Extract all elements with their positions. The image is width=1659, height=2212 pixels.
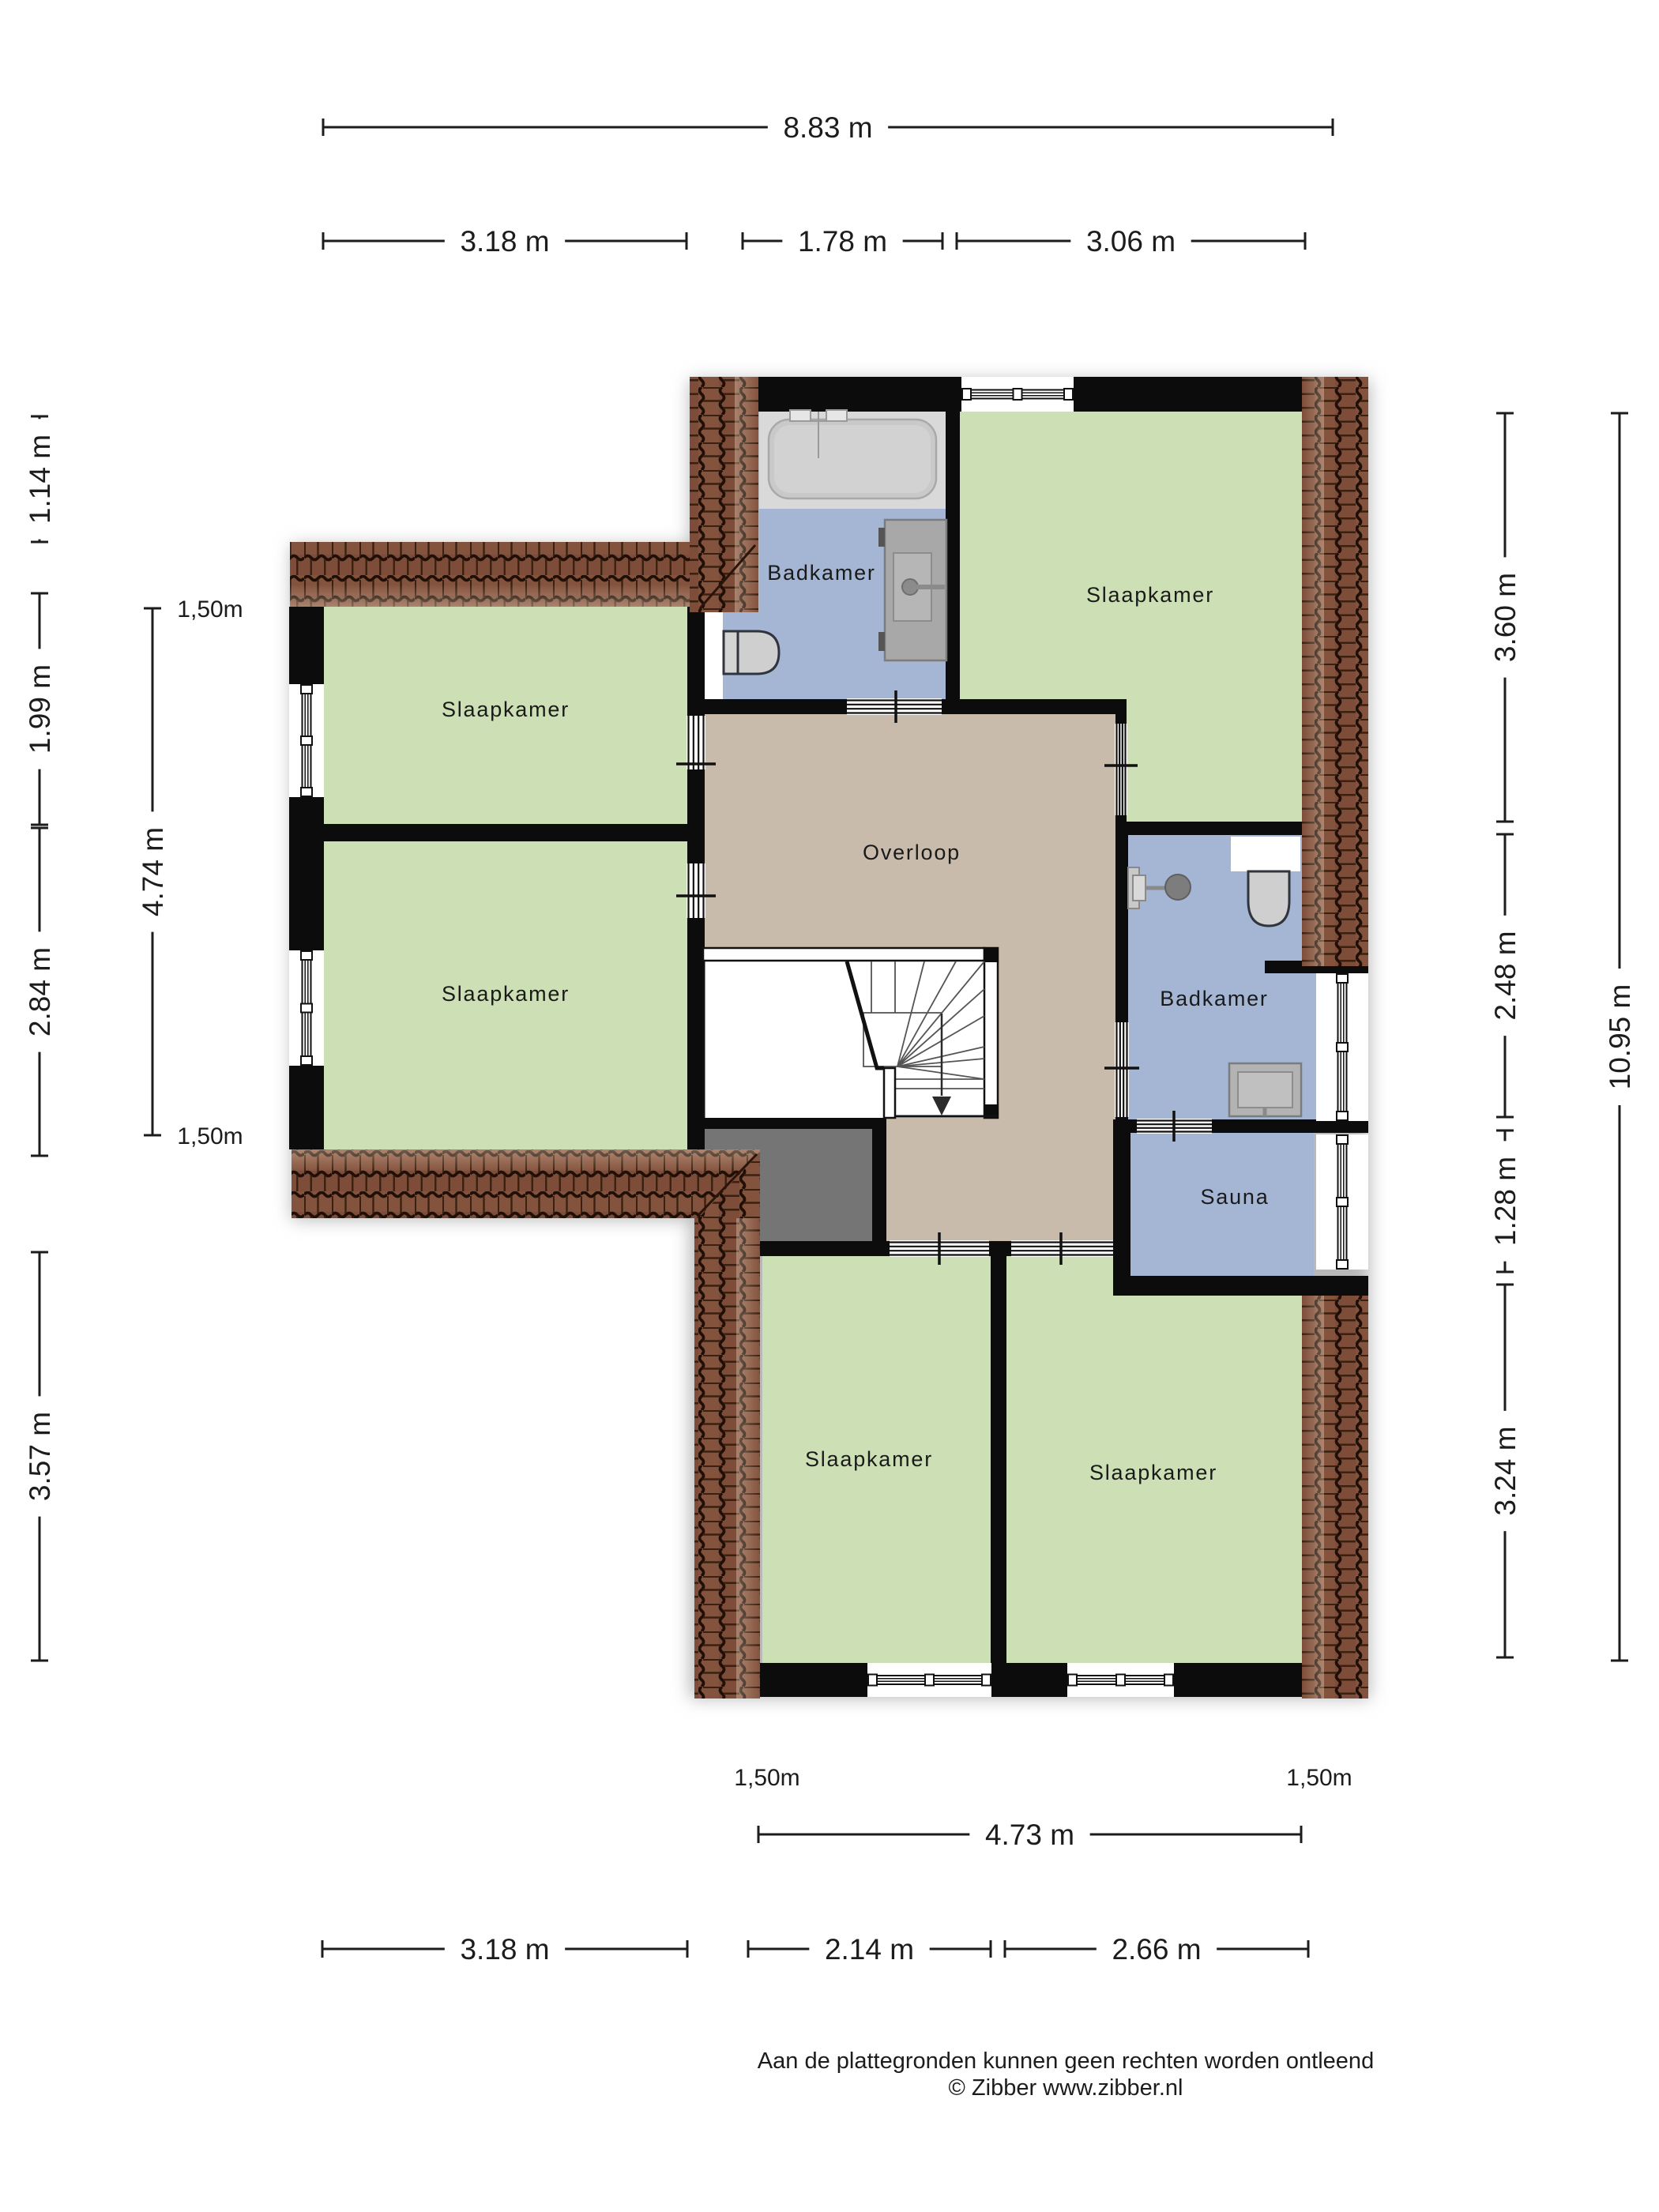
svg-text:8.83 m: 8.83 m bbox=[783, 111, 872, 144]
svg-text:3.06 m: 3.06 m bbox=[1086, 225, 1176, 258]
svg-text:Badkamer: Badkamer bbox=[767, 561, 875, 585]
svg-text:1,50m: 1,50m bbox=[177, 1123, 243, 1149]
svg-text:Slaapkamer: Slaapkamer bbox=[1089, 1461, 1217, 1484]
svg-text:2.48 m: 2.48 m bbox=[1489, 931, 1522, 1020]
svg-text:Slaapkamer: Slaapkamer bbox=[805, 1447, 933, 1471]
svg-text:© Zibber www.zibber.nl: © Zibber www.zibber.nl bbox=[949, 2075, 1183, 2101]
svg-text:2.84 m: 2.84 m bbox=[24, 947, 56, 1036]
svg-text:1.78 m: 1.78 m bbox=[798, 225, 887, 258]
svg-text:3.18 m: 3.18 m bbox=[460, 1933, 549, 1966]
svg-text:Sauna: Sauna bbox=[1200, 1185, 1269, 1209]
svg-text:1.14 m: 1.14 m bbox=[24, 434, 56, 524]
svg-text:Slaapkamer: Slaapkamer bbox=[1086, 583, 1214, 607]
svg-text:3.24 m: 3.24 m bbox=[1489, 1426, 1522, 1515]
svg-text:Slaapkamer: Slaapkamer bbox=[442, 698, 570, 721]
svg-text:1.99 m: 1.99 m bbox=[24, 664, 56, 754]
svg-text:1,50m: 1,50m bbox=[734, 1765, 799, 1791]
svg-text:1,50m: 1,50m bbox=[1286, 1765, 1352, 1791]
svg-text:1,50m: 1,50m bbox=[177, 596, 243, 623]
svg-text:Slaapkamer: Slaapkamer bbox=[442, 982, 570, 1006]
svg-text:4.73 m: 4.73 m bbox=[985, 1819, 1074, 1851]
svg-text:Overloop: Overloop bbox=[863, 841, 961, 864]
svg-text:Badkamer: Badkamer bbox=[1160, 987, 1268, 1010]
svg-text:Aan de plattegronden kunnen ge: Aan de plattegronden kunnen geen rechten… bbox=[758, 2048, 1374, 2074]
svg-text:4.74 m: 4.74 m bbox=[137, 827, 169, 916]
svg-text:3.60 m: 3.60 m bbox=[1489, 573, 1522, 662]
svg-text:2.14 m: 2.14 m bbox=[825, 1933, 914, 1966]
svg-text:10.95 m: 10.95 m bbox=[1604, 984, 1636, 1090]
svg-text:3.57 m: 3.57 m bbox=[24, 1412, 56, 1501]
svg-text:1.28 m: 1.28 m bbox=[1489, 1157, 1522, 1246]
svg-text:2.66 m: 2.66 m bbox=[1112, 1933, 1201, 1966]
svg-text:3.18 m: 3.18 m bbox=[460, 225, 549, 258]
